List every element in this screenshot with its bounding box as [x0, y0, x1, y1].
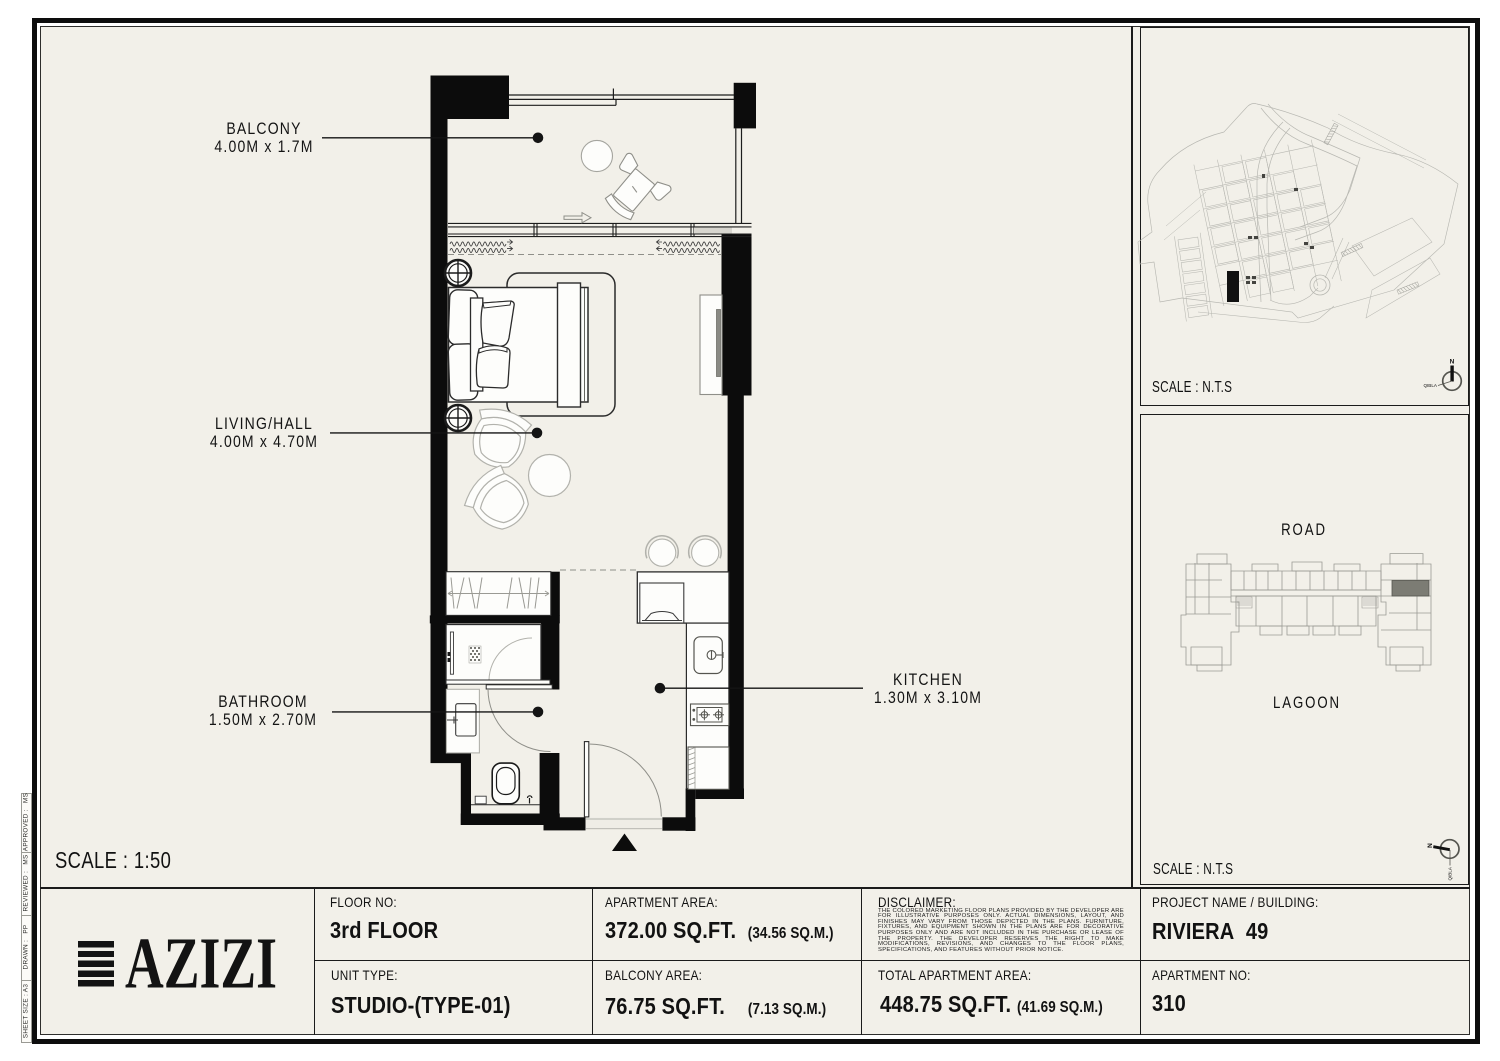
svg-text:N: N [1450, 359, 1455, 366]
svg-text:QIBLA: QIBLA [1448, 866, 1453, 880]
svg-text:N: N [1427, 843, 1434, 848]
svg-text:QIBLA: QIBLA [1423, 383, 1437, 388]
